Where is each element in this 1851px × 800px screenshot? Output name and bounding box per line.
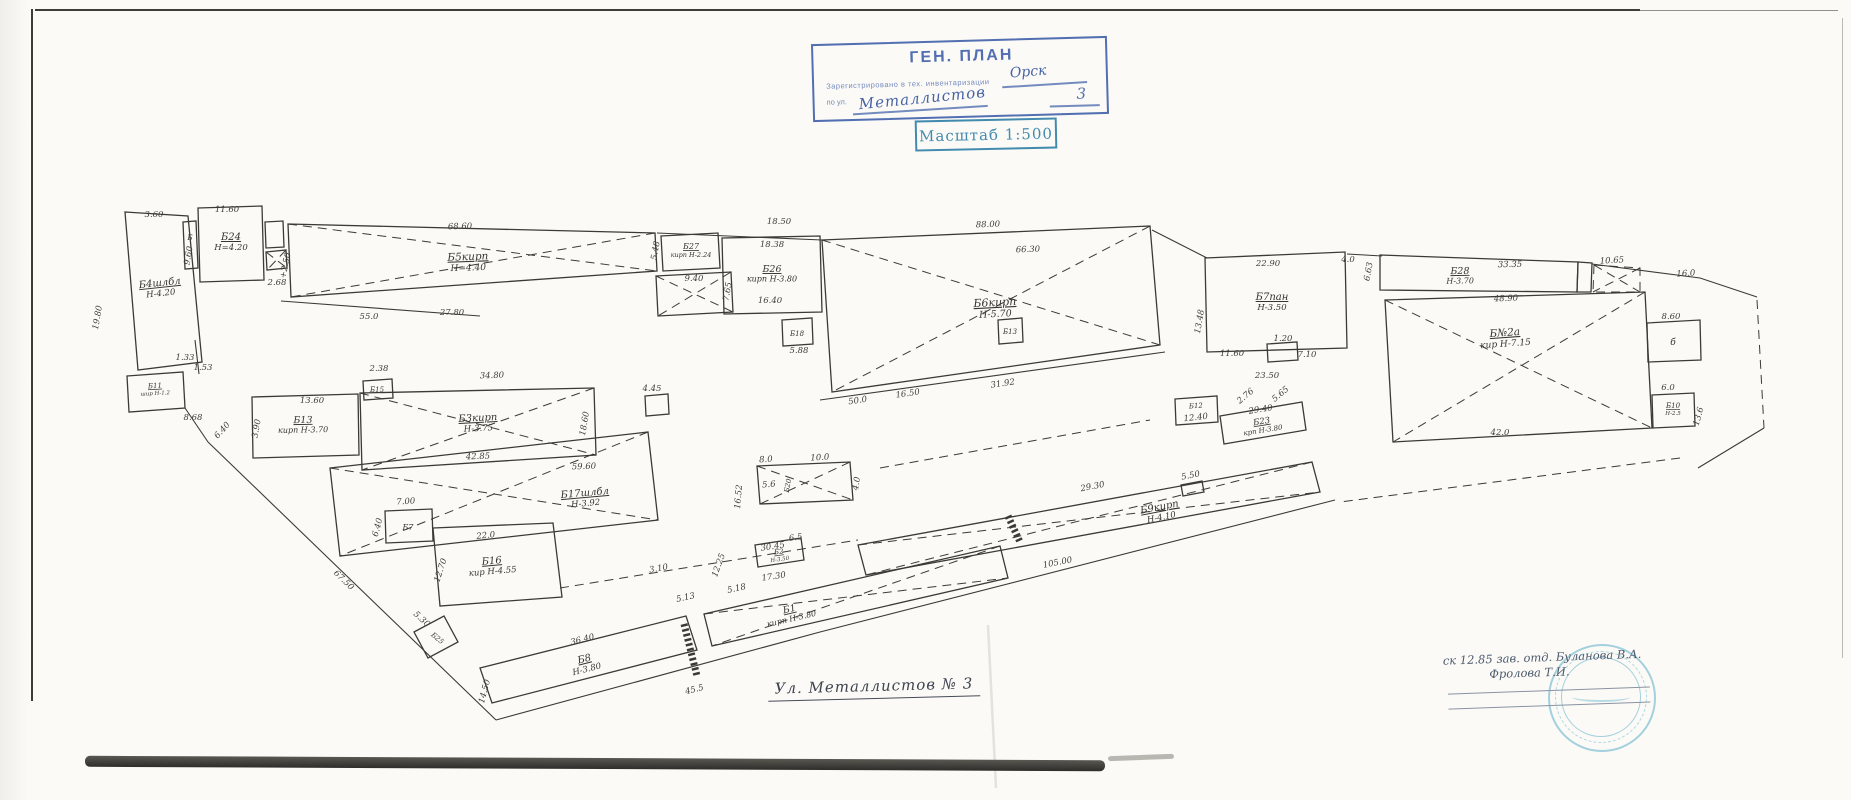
- building-height-label: Н=4.40: [449, 263, 486, 274]
- building-label: Б24: [220, 232, 241, 243]
- building-b5: Б5кирпН=4.40: [288, 224, 657, 297]
- building-label: Б26: [761, 264, 781, 275]
- building-height-label: кирп Н-2.24: [671, 251, 712, 259]
- dim-text: 9.40: [685, 274, 705, 284]
- scale-stamp: Масштаб 1:500: [915, 118, 1058, 152]
- boundary-line: [1340, 458, 1680, 502]
- dim-text: 5.50: [1180, 469, 1201, 483]
- stamp-city-handwritten: Орск: [1009, 63, 1047, 82]
- dim-text: 66.30: [1016, 245, 1041, 256]
- dim-text: 50.0: [848, 395, 869, 408]
- building-b11: Б11шир Н-1.2: [127, 372, 185, 412]
- dim-text: 6.0: [1661, 383, 1675, 393]
- seal-center-mark: [1572, 692, 1630, 702]
- building-b18: Б18: [782, 318, 813, 346]
- building-b-lc: б: [1647, 320, 1701, 362]
- dim-text: 3.10: [648, 562, 669, 575]
- building-label: Б20: [783, 478, 794, 495]
- dim-text: 6.40: [371, 516, 386, 537]
- dim-text: 5.13: [675, 591, 696, 605]
- building-label: Б18: [789, 330, 805, 338]
- street-label-text: Ул. Металлистов № 3: [774, 674, 973, 697]
- dashed-line: [880, 420, 1150, 468]
- building-label: Б25: [429, 630, 446, 646]
- building-height-label: шир Н-1.2: [140, 390, 170, 398]
- building-height-label: кир Н-7.15: [1480, 338, 1532, 352]
- dim-text: 8.0: [759, 455, 774, 466]
- boundary-line: [1152, 230, 1207, 258]
- building-b28: Б28Н-3.70: [1380, 255, 1578, 292]
- dim-text: 36.40: [569, 632, 596, 648]
- dim-text: 42.0: [1490, 428, 1511, 438]
- dim-text: 31.92: [990, 377, 1015, 390]
- building-height-label: кирп Н-3.80: [747, 275, 797, 284]
- building-height-label: Н-2.5: [1664, 411, 1681, 417]
- dim-text: 19.80: [91, 304, 105, 330]
- dim-text: 18.38: [760, 240, 785, 250]
- building-annex4: [645, 394, 669, 416]
- building-b8: Б8Н-3.80: [480, 616, 697, 703]
- building-b24: Б24Н=4.20: [198, 206, 264, 282]
- building-height-label: Н-3.92: [570, 498, 601, 511]
- dim-text: 27.80: [439, 308, 465, 318]
- building-height-label: Н=4.20: [213, 243, 248, 253]
- building-label: Б5кирп: [446, 250, 489, 263]
- dim-text: 12.70: [433, 557, 450, 584]
- dim-text: 16.40: [758, 296, 783, 306]
- building-b16: Б16кир Н-4.55: [433, 523, 562, 606]
- hatch-gate: [1008, 516, 1020, 542]
- dim-text: 59.60: [572, 462, 597, 473]
- dim-text: 13.60: [300, 396, 325, 406]
- dim-text: 68.60: [448, 222, 473, 232]
- dim-text: 22.0: [475, 530, 496, 542]
- stamp-rule: [1002, 81, 1087, 88]
- dim-text: 33.35: [1498, 260, 1523, 270]
- stamp-sheet-number: 3: [1076, 84, 1086, 102]
- dim-text: 11.60: [215, 205, 240, 215]
- dim-text: 2.76: [1234, 386, 1256, 407]
- dim-text: 12.25: [710, 552, 728, 578]
- dim-text: 7.10: [1298, 350, 1318, 360]
- dim-text: 5.30: [411, 609, 432, 629]
- building-annex2: [1267, 342, 1298, 362]
- stamp-rule: [1050, 104, 1100, 107]
- building-label: Б: [186, 234, 192, 242]
- building-label: Б10: [1665, 402, 1681, 410]
- stamp-printed-prefix: по ул.: [826, 97, 847, 107]
- dim-text: 8.60: [1662, 312, 1682, 322]
- building-b15: Б15: [363, 379, 393, 400]
- building-b2a: Б№2акир Н-7.15: [1385, 292, 1652, 442]
- dim-text: 1.53: [194, 363, 213, 373]
- registry-stamp: ГЕН. ПЛАН Зарегистрировано в тех. инвент…: [811, 36, 1109, 122]
- building-b13r: Б13: [998, 318, 1023, 344]
- dim-text: 29.30: [1079, 480, 1106, 495]
- building-b7s: Б7: [385, 509, 433, 543]
- dim-text: 4.0: [1340, 255, 1355, 265]
- dim-text: 42.85: [465, 452, 491, 463]
- building-b9: Б9кирпН-4.10: [858, 462, 1320, 575]
- dim-text: 55.0: [360, 312, 380, 322]
- building-b10: Б10Н-2.5: [1652, 393, 1695, 428]
- building-label: б: [1670, 337, 1676, 348]
- building-tick1: [1181, 481, 1204, 496]
- dim-text: 13.48: [1193, 308, 1207, 334]
- dim-text: 11.60: [1220, 349, 1245, 359]
- dim-text: 23.50: [1254, 371, 1280, 381]
- dashed-line: [560, 540, 858, 588]
- building-b27: Б27кирп Н-2.24: [661, 233, 720, 271]
- boundary-line: [1757, 300, 1764, 428]
- dim-text: 16.52: [733, 484, 745, 509]
- stamp-title: ГЕН. ПЛАН: [909, 47, 1013, 68]
- building-height-label: Н-3.70: [1445, 276, 1474, 285]
- dim-text: 18.60: [578, 410, 592, 436]
- building-height-label: Н-4.20: [145, 287, 177, 300]
- building-label: Б7: [402, 523, 415, 532]
- dim-text: 45.5: [683, 683, 705, 698]
- dim-text: 3.60: [145, 210, 165, 220]
- dim-text: 10.65: [1599, 255, 1624, 266]
- dim-text: 9.60: [182, 245, 195, 266]
- building-annex1: [265, 221, 284, 248]
- dim-text: 16.0: [1676, 268, 1696, 279]
- building-label: Б27: [682, 242, 700, 251]
- dim-text: 17.30: [761, 570, 787, 583]
- building-height-label: Н-3.50: [1256, 303, 1287, 313]
- dim-text: 2.38: [369, 364, 390, 374]
- dim-text: 7.00: [396, 496, 416, 507]
- boundary-line: [1698, 428, 1764, 468]
- building-height-label: кирп Н-3.70: [278, 425, 328, 435]
- building-height-label: Н-3.75: [463, 423, 494, 435]
- dim-text: 8.68: [184, 413, 204, 423]
- building-label: Б7пан: [1255, 292, 1289, 303]
- dim-text: 1.33: [176, 353, 195, 363]
- building-b6: Б6кирпН-5.70: [822, 226, 1160, 392]
- dim-text: 3.90: [250, 418, 263, 439]
- dim-text: 6.5: [788, 532, 803, 544]
- dim-text: 48.90: [1493, 294, 1519, 305]
- building-annex3: [1577, 262, 1592, 292]
- dim-text: 5.18: [726, 582, 747, 596]
- scale-label: Масштаб 1:500: [919, 124, 1053, 145]
- dim-text: 34.80: [480, 371, 505, 382]
- boundary-line: [820, 352, 1165, 400]
- scanned-site-plan-page: Б4шлблН-4.20Б24Н=4.20ББ5кирпН=4.40Б27кир…: [0, 0, 1851, 800]
- dim-text: 22.90: [1255, 259, 1281, 269]
- dim-text: 4.45: [642, 384, 662, 394]
- dim-text: 5.65: [1270, 385, 1291, 405]
- dim-text: 5.48: [649, 240, 662, 261]
- dim-text: 4.0: [851, 476, 863, 493]
- building-height-label: кир Н-4.55: [468, 565, 517, 579]
- dim-text: 29.40: [1247, 403, 1274, 417]
- dim-text: 10.0: [810, 452, 830, 463]
- dim-text: 2.68: [267, 278, 288, 288]
- building-label: Б11: [147, 382, 162, 391]
- dim-text: 88.00: [976, 220, 1001, 231]
- dim-text: 1.20: [1274, 334, 1294, 344]
- dim-text: 16.50: [895, 387, 921, 400]
- dim-text: 6.40: [212, 420, 232, 441]
- dim-text: 18.50: [767, 217, 792, 227]
- dim-text: 5.6: [762, 480, 777, 491]
- dim-text: 5.88: [790, 346, 810, 356]
- dim-text: 6.63: [1362, 261, 1375, 281]
- building-label: Б13: [1002, 328, 1018, 336]
- building-label: Б12: [1188, 401, 1204, 410]
